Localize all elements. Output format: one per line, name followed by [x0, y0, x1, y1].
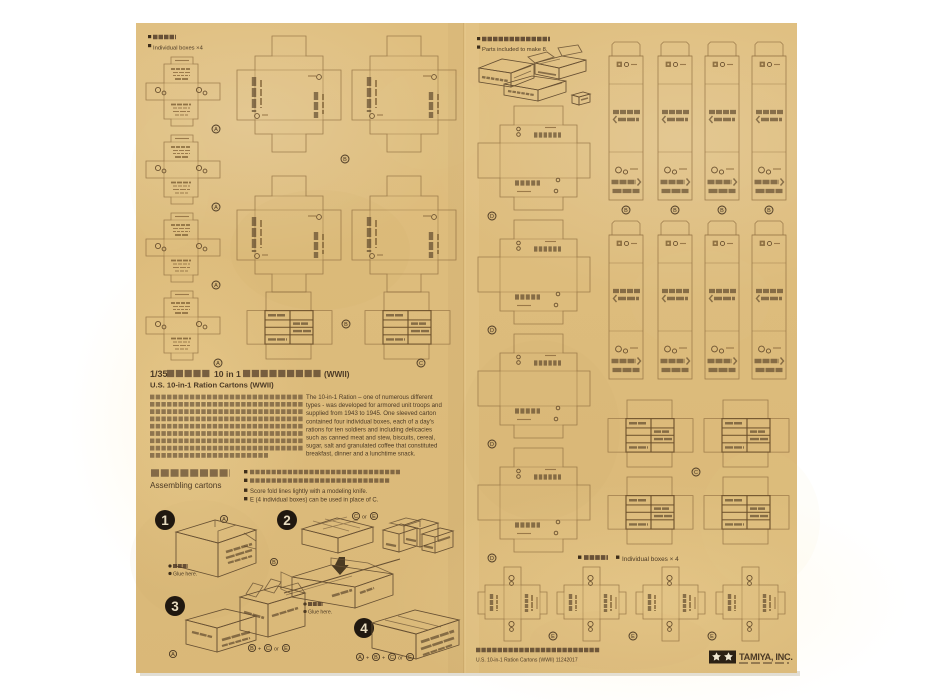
svg-text:E: E [372, 514, 376, 520]
svg-text:E: E [284, 646, 288, 652]
svg-text:Individual boxes ×4: Individual boxes ×4 [153, 46, 204, 52]
svg-text:C: C [390, 655, 394, 661]
svg-text:D: D [490, 556, 494, 562]
svg-text:Parts included to make 8.: Parts included to make 8. [482, 47, 548, 53]
svg-text:C: C [266, 646, 270, 652]
svg-text:such as canned meat and stew,: such as canned meat and stew, biscuits, … [306, 435, 435, 442]
svg-text:rations for ten soldiers and i: rations for ten soldiers and including d… [306, 426, 432, 433]
svg-text:A: A [214, 127, 218, 133]
svg-text:E (4 individual boxes) can be: E (4 individual boxes) can be used in pl… [250, 497, 379, 503]
svg-text:4: 4 [360, 621, 368, 636]
svg-text:A: A [171, 652, 175, 658]
svg-text:1: 1 [161, 513, 169, 528]
svg-text:10 in 1: 10 in 1 [214, 369, 241, 379]
svg-text:+: + [258, 647, 261, 653]
svg-text:+: + [366, 656, 369, 662]
svg-text:B: B [343, 157, 347, 163]
svg-text:E: E [408, 655, 412, 661]
svg-text:E: E [631, 634, 635, 640]
svg-text:B: B [624, 208, 628, 214]
svg-text:U.S. 10-in-1 Ration Cartons (W: U.S. 10-in-1 Ration Cartons (WWII) 11242… [476, 658, 578, 664]
svg-text:B: B [374, 655, 378, 661]
svg-text:A: A [216, 361, 220, 367]
svg-text:C: C [354, 514, 358, 520]
svg-text:or: or [274, 647, 279, 653]
svg-text:types - was developed for armo: types - was developed for armored unit t… [306, 402, 442, 409]
svg-text:+: + [382, 656, 385, 662]
svg-text:B: B [272, 560, 276, 566]
svg-text:Glue here.: Glue here. [173, 572, 197, 578]
svg-text:1/35: 1/35 [150, 369, 168, 379]
svg-text:D: D [490, 328, 494, 334]
svg-text:A: A [214, 205, 218, 211]
svg-text:B: B [673, 208, 677, 214]
svg-text:The 10-in-1 Ration – one of nu: The 10-in-1 Ration – one of numerous dif… [306, 394, 433, 401]
svg-text:Score fold lines lightly with: Score fold lines lightly with a modeling… [250, 489, 368, 495]
svg-text:E: E [710, 634, 714, 640]
svg-text:(WWII): (WWII) [324, 370, 350, 379]
svg-text:contained four individual boxe: contained four individual boxes, each of… [306, 418, 434, 425]
svg-text:supplied from 1943 to 1945. On: supplied from 1943 to 1945. One sleeved … [306, 410, 436, 417]
svg-text:B: B [344, 322, 348, 328]
svg-text:3: 3 [171, 599, 179, 614]
svg-text:Assembling cartons: Assembling cartons [150, 481, 221, 490]
svg-text:D: D [490, 214, 494, 220]
svg-text:TAMIYA, INC.: TAMIYA, INC. [739, 652, 793, 662]
svg-text:A: A [358, 655, 362, 661]
svg-text:E: E [551, 634, 555, 640]
svg-text:U.S. 10-in-1 Ration Cartons (W: U.S. 10-in-1 Ration Cartons (WWII) [150, 381, 274, 390]
svg-text:B: B [250, 646, 254, 652]
svg-text:Individual boxes × 4: Individual boxes × 4 [622, 556, 679, 563]
svg-text:D: D [490, 442, 494, 448]
svg-text:B: B [720, 208, 724, 214]
svg-text:A: A [214, 283, 218, 289]
svg-text:Glue here.: Glue here. [308, 610, 332, 616]
svg-text:C: C [419, 361, 423, 367]
svg-text:C: C [694, 470, 698, 476]
svg-text:breakfast, dinner and a luncht: breakfast, dinner and a lunchtime snack. [306, 451, 416, 458]
svg-text:B: B [767, 208, 771, 214]
svg-text:sugar, salt and granulated cof: sugar, salt and granulated coffee that c… [306, 443, 437, 450]
svg-text:2: 2 [283, 513, 291, 528]
svg-text:or: or [398, 656, 403, 662]
svg-text:or: or [362, 515, 367, 521]
